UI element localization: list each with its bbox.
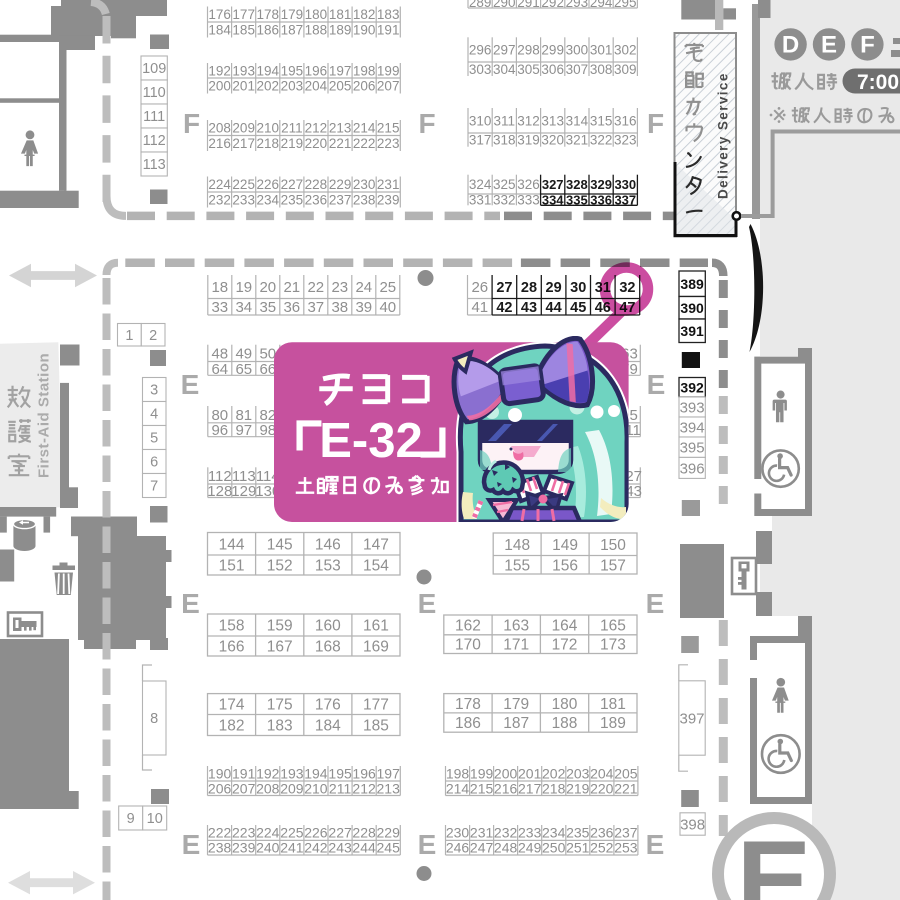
svg-text:200: 200	[494, 766, 518, 782]
svg-text:230: 230	[446, 825, 470, 841]
svg-text:234: 234	[257, 193, 280, 208]
svg-text:32: 32	[619, 280, 635, 296]
svg-text:391: 391	[680, 323, 704, 339]
svg-text:27: 27	[496, 280, 512, 296]
svg-text:192: 192	[208, 63, 231, 78]
svg-text:111: 111	[143, 109, 165, 125]
svg-text:167: 167	[267, 639, 293, 656]
svg-text:220: 220	[590, 780, 614, 796]
svg-text:308: 308	[590, 62, 613, 77]
svg-text:290: 290	[493, 0, 516, 10]
svg-text:239: 239	[377, 193, 400, 208]
svg-text:165: 165	[600, 618, 626, 635]
svg-text:169: 169	[363, 639, 389, 656]
svg-text:44: 44	[546, 300, 562, 316]
svg-text:202: 202	[542, 766, 566, 782]
svg-text:315: 315	[590, 113, 613, 128]
svg-text:219: 219	[281, 136, 304, 151]
svg-text:212: 212	[305, 121, 328, 136]
svg-text:247: 247	[470, 840, 494, 856]
svg-text:238: 238	[353, 193, 376, 208]
svg-text:314: 314	[566, 113, 589, 128]
svg-text:180: 180	[552, 696, 578, 713]
svg-text:210: 210	[257, 121, 280, 136]
svg-text:221: 221	[614, 780, 638, 796]
svg-text:30: 30	[570, 280, 586, 296]
svg-text:188: 188	[305, 23, 328, 38]
svg-text:189: 189	[600, 715, 626, 732]
svg-text:198: 198	[353, 63, 376, 78]
svg-text:329: 329	[590, 177, 612, 192]
svg-text:E-32: E-32	[319, 414, 423, 468]
svg-text:158: 158	[219, 618, 245, 635]
svg-text:232: 232	[208, 193, 231, 208]
svg-text:18: 18	[211, 279, 228, 296]
svg-text:197: 197	[377, 766, 401, 782]
svg-text:221: 221	[329, 136, 352, 151]
svg-text:220: 220	[305, 136, 328, 151]
svg-text:45: 45	[570, 300, 586, 316]
svg-text:300: 300	[566, 43, 589, 58]
svg-text:3: 3	[150, 383, 158, 399]
svg-text:209: 209	[280, 780, 304, 796]
svg-text:162: 162	[455, 618, 481, 635]
svg-text:223: 223	[377, 136, 400, 151]
svg-text:224: 224	[256, 825, 280, 841]
svg-text:F: F	[647, 108, 664, 139]
svg-text:239: 239	[232, 840, 256, 856]
svg-text:248: 248	[494, 840, 518, 856]
svg-text:E: E	[182, 829, 201, 860]
svg-text:316: 316	[614, 113, 637, 128]
svg-text:164: 164	[552, 618, 578, 635]
svg-text:E: E	[418, 829, 437, 860]
svg-text:230: 230	[353, 177, 376, 192]
svg-text:324: 324	[469, 177, 492, 192]
svg-text:250: 250	[542, 840, 566, 856]
svg-text:7:00: 7:00	[857, 71, 899, 94]
svg-text:155: 155	[504, 557, 530, 574]
svg-text:96: 96	[211, 422, 228, 439]
svg-text:291: 291	[517, 0, 540, 10]
svg-text:236: 236	[305, 193, 328, 208]
svg-text:295: 295	[614, 0, 637, 10]
svg-text:97: 97	[235, 422, 252, 439]
svg-text:166: 166	[219, 639, 245, 656]
svg-text:334: 334	[542, 193, 564, 208]
svg-text:176: 176	[315, 697, 341, 714]
svg-text:208: 208	[208, 121, 231, 136]
svg-text:173: 173	[600, 637, 626, 654]
svg-text:331: 331	[469, 193, 492, 208]
svg-text:190: 190	[208, 766, 232, 782]
svg-text:238: 238	[208, 840, 232, 856]
svg-text:303: 303	[469, 62, 492, 77]
svg-text:249: 249	[518, 840, 542, 856]
svg-text:203: 203	[566, 766, 590, 782]
svg-text:157: 157	[600, 557, 626, 574]
svg-text:194: 194	[304, 766, 328, 782]
svg-text:336: 336	[590, 193, 612, 208]
svg-text:153: 153	[315, 558, 341, 575]
svg-text:37: 37	[307, 299, 324, 316]
svg-text:228: 228	[352, 825, 376, 841]
svg-text:160: 160	[315, 618, 341, 635]
svg-text:243: 243	[328, 840, 352, 856]
svg-text:36: 36	[283, 299, 300, 316]
svg-text:229: 229	[329, 177, 352, 192]
svg-text:251: 251	[566, 840, 590, 856]
svg-text:5: 5	[150, 431, 158, 447]
svg-text:35: 35	[259, 299, 276, 316]
svg-text:333: 333	[517, 193, 540, 208]
svg-text:240: 240	[256, 840, 280, 856]
svg-text:152: 152	[267, 558, 293, 575]
svg-text:6: 6	[150, 455, 158, 471]
svg-text:337: 337	[614, 193, 636, 208]
svg-text:196: 196	[352, 766, 376, 782]
svg-text:E: E	[646, 829, 665, 860]
svg-text:330: 330	[614, 177, 636, 192]
svg-text:232: 232	[494, 825, 518, 841]
svg-text:205: 205	[329, 79, 352, 94]
svg-text:216: 216	[208, 136, 231, 151]
svg-text:302: 302	[614, 43, 637, 58]
svg-text:19: 19	[235, 279, 252, 296]
svg-text:175: 175	[267, 697, 293, 714]
svg-text:180: 180	[305, 7, 328, 22]
svg-text:211: 211	[329, 780, 352, 796]
svg-text:179: 179	[503, 696, 529, 713]
svg-text:25: 25	[379, 279, 396, 296]
svg-text:193: 193	[280, 766, 304, 782]
svg-text:1: 1	[125, 328, 133, 344]
svg-text:187: 187	[503, 715, 529, 732]
svg-text:206: 206	[208, 780, 232, 796]
svg-text:335: 335	[566, 193, 588, 208]
svg-text:304: 304	[493, 62, 516, 77]
svg-text:297: 297	[493, 43, 516, 58]
svg-text:144: 144	[219, 536, 245, 553]
svg-text:174: 174	[219, 697, 245, 714]
svg-text:185: 185	[363, 718, 389, 735]
svg-text:191: 191	[232, 766, 256, 782]
svg-text:323: 323	[614, 133, 637, 148]
svg-text:397: 397	[679, 710, 704, 727]
svg-text:161: 161	[363, 618, 389, 635]
svg-text:204: 204	[305, 79, 328, 94]
svg-text:234: 234	[542, 825, 566, 841]
svg-text:109: 109	[142, 61, 166, 77]
svg-text:225: 225	[280, 825, 304, 841]
svg-text:292: 292	[541, 0, 564, 10]
svg-text:325: 325	[493, 177, 516, 192]
svg-text:8: 8	[150, 711, 158, 727]
svg-text:328: 328	[566, 177, 588, 192]
svg-text:231: 231	[470, 825, 494, 841]
svg-text:184: 184	[208, 23, 231, 38]
svg-text:394: 394	[680, 419, 705, 436]
svg-text:22: 22	[307, 279, 324, 296]
svg-text:189: 189	[329, 23, 352, 38]
svg-text:219: 219	[566, 780, 590, 796]
svg-text:66: 66	[259, 361, 276, 378]
svg-text:212: 212	[352, 780, 376, 796]
svg-text:20: 20	[259, 279, 276, 296]
svg-text:34: 34	[235, 299, 252, 316]
svg-text:213: 213	[377, 780, 401, 796]
svg-text:203: 203	[281, 79, 304, 94]
svg-text:128: 128	[207, 483, 232, 500]
svg-text:245: 245	[377, 840, 401, 856]
svg-text:21: 21	[283, 279, 300, 296]
svg-text:112: 112	[143, 133, 166, 149]
svg-text:312: 312	[517, 113, 540, 128]
svg-text:299: 299	[541, 43, 564, 58]
svg-text:192: 192	[256, 766, 280, 782]
svg-text:64: 64	[211, 361, 228, 378]
svg-text:198: 198	[446, 766, 470, 782]
svg-text:215: 215	[470, 780, 494, 796]
svg-text:301: 301	[590, 43, 613, 58]
svg-text:211: 211	[281, 121, 303, 136]
svg-text:65: 65	[235, 361, 252, 378]
svg-text:313: 313	[541, 113, 564, 128]
svg-text:319: 319	[517, 133, 540, 148]
svg-text:171: 171	[503, 637, 529, 654]
svg-text:194: 194	[257, 63, 280, 78]
svg-text:233: 233	[518, 825, 542, 841]
svg-text:210: 210	[304, 780, 328, 796]
svg-text:306: 306	[541, 62, 564, 77]
svg-text:E: E	[418, 588, 437, 619]
svg-text:181: 181	[329, 7, 352, 22]
svg-text:398: 398	[680, 816, 705, 833]
svg-text:193: 193	[232, 63, 255, 78]
svg-text:395: 395	[680, 440, 705, 457]
svg-text:223: 223	[232, 825, 256, 841]
svg-text:305: 305	[517, 62, 540, 77]
svg-text:F: F	[860, 32, 875, 59]
svg-text:216: 216	[494, 780, 518, 796]
svg-text:326: 326	[517, 177, 540, 192]
svg-text:327: 327	[542, 177, 564, 192]
svg-text:202: 202	[257, 79, 280, 94]
svg-text:321: 321	[566, 133, 589, 148]
svg-text:183: 183	[377, 7, 400, 22]
svg-text:200: 200	[208, 79, 231, 94]
svg-text:235: 235	[566, 825, 590, 841]
svg-text:129: 129	[231, 483, 256, 500]
svg-text:199: 199	[377, 63, 400, 78]
svg-text:214: 214	[353, 121, 376, 136]
svg-text:320: 320	[541, 133, 564, 148]
svg-text:182: 182	[353, 7, 376, 22]
svg-text:217: 217	[518, 780, 542, 796]
svg-text:159: 159	[267, 618, 293, 635]
svg-text:F: F	[418, 108, 435, 139]
svg-text:183: 183	[267, 718, 293, 735]
svg-text:235: 235	[281, 193, 304, 208]
svg-text:2: 2	[149, 328, 157, 344]
svg-text:206: 206	[353, 79, 376, 94]
svg-text:208: 208	[256, 780, 280, 796]
svg-text:7: 7	[150, 479, 158, 495]
svg-text:146: 146	[315, 536, 341, 553]
svg-text:233: 233	[232, 193, 255, 208]
svg-text:389: 389	[680, 276, 704, 292]
svg-text:214: 214	[446, 780, 470, 796]
svg-text:209: 209	[232, 121, 255, 136]
svg-text:227: 227	[328, 825, 352, 841]
svg-text:190: 190	[353, 23, 376, 38]
svg-text:40: 40	[379, 299, 396, 316]
svg-text:242: 242	[304, 840, 328, 856]
svg-text:178: 178	[257, 7, 280, 22]
svg-text:182: 182	[219, 718, 245, 735]
svg-text:195: 195	[281, 63, 304, 78]
svg-text:213: 213	[329, 121, 352, 136]
svg-text:229: 229	[377, 825, 401, 841]
svg-text:149: 149	[552, 537, 578, 554]
svg-text:322: 322	[590, 133, 613, 148]
svg-text:150: 150	[600, 537, 626, 554]
svg-text:217: 217	[232, 136, 255, 151]
svg-text:9: 9	[127, 811, 135, 827]
svg-text:396: 396	[680, 460, 705, 477]
svg-text:253: 253	[614, 840, 638, 856]
svg-text:226: 226	[257, 177, 280, 192]
svg-text:294: 294	[590, 0, 613, 10]
svg-text:43: 43	[521, 300, 537, 316]
svg-text:205: 205	[614, 766, 638, 782]
svg-text:225: 225	[232, 177, 255, 192]
svg-text:289: 289	[469, 0, 492, 10]
svg-text:147: 147	[363, 536, 389, 553]
svg-text:D: D	[782, 32, 799, 59]
svg-text:390: 390	[680, 300, 704, 316]
svg-text:24: 24	[355, 279, 372, 296]
svg-text:168: 168	[315, 639, 341, 656]
svg-text:145: 145	[267, 536, 293, 553]
svg-text:218: 218	[542, 780, 566, 796]
svg-text:E: E	[181, 588, 200, 619]
svg-text:201: 201	[518, 766, 542, 782]
svg-text:222: 222	[208, 825, 232, 841]
svg-text:39: 39	[355, 299, 372, 316]
svg-text:293: 293	[566, 0, 589, 10]
svg-text:Delivery Service: Delivery Service	[716, 72, 731, 199]
svg-text:38: 38	[331, 299, 348, 316]
svg-text:226: 226	[304, 825, 328, 841]
svg-text:311: 311	[494, 113, 516, 128]
svg-text:110: 110	[143, 85, 166, 101]
svg-text:176: 176	[208, 7, 231, 22]
svg-text:98: 98	[259, 422, 276, 439]
svg-text:188: 188	[552, 715, 578, 732]
svg-text:307: 307	[566, 62, 589, 77]
svg-text:E: E	[181, 369, 200, 400]
svg-text:113: 113	[143, 157, 166, 173]
svg-text:187: 187	[281, 23, 304, 38]
svg-text:218: 218	[257, 136, 280, 151]
svg-text:231: 231	[377, 177, 400, 192]
svg-text:237: 237	[329, 193, 352, 208]
svg-text:241: 241	[280, 840, 304, 856]
svg-text:29: 29	[546, 280, 562, 296]
svg-text:201: 201	[232, 79, 255, 94]
svg-text:177: 177	[363, 697, 389, 714]
svg-text:204: 204	[590, 766, 614, 782]
svg-text:236: 236	[590, 825, 614, 841]
svg-text:26: 26	[471, 279, 488, 296]
svg-text:First-Aid Station: First-Aid Station	[36, 353, 53, 478]
svg-text:156: 156	[552, 557, 578, 574]
svg-text:222: 222	[353, 136, 376, 151]
svg-text:191: 191	[377, 23, 400, 38]
svg-text:41: 41	[471, 299, 488, 316]
svg-text:185: 185	[232, 23, 255, 38]
svg-text:23: 23	[331, 279, 348, 296]
svg-text:393: 393	[680, 399, 705, 416]
svg-text:199: 199	[470, 766, 494, 782]
svg-text:228: 228	[305, 177, 328, 192]
svg-text:F: F	[183, 108, 200, 139]
svg-text:186: 186	[455, 715, 481, 732]
svg-text:177: 177	[232, 7, 255, 22]
svg-text:179: 179	[281, 7, 304, 22]
svg-text:244: 244	[352, 840, 376, 856]
svg-text:207: 207	[232, 780, 256, 796]
svg-text:E: E	[737, 818, 812, 900]
svg-text:172: 172	[552, 637, 578, 654]
svg-text:309: 309	[614, 62, 637, 77]
svg-text:318: 318	[493, 133, 516, 148]
svg-text:332: 332	[493, 193, 516, 208]
svg-text:195: 195	[328, 766, 352, 782]
svg-text:151: 151	[219, 558, 245, 575]
svg-text:196: 196	[305, 63, 328, 78]
svg-text:178: 178	[455, 696, 481, 713]
svg-text:186: 186	[257, 23, 280, 38]
svg-text:317: 317	[469, 133, 492, 148]
svg-text:207: 207	[377, 79, 400, 94]
svg-text:392: 392	[680, 379, 704, 395]
svg-text:E: E	[821, 32, 837, 59]
svg-text:184: 184	[315, 718, 341, 735]
svg-text:42: 42	[496, 300, 512, 316]
svg-text:296: 296	[469, 43, 492, 58]
svg-text:163: 163	[503, 618, 529, 635]
svg-text:237: 237	[614, 825, 638, 841]
svg-text:310: 310	[469, 113, 492, 128]
svg-text:252: 252	[590, 840, 614, 856]
svg-text:148: 148	[504, 537, 530, 554]
svg-text:154: 154	[363, 558, 389, 575]
svg-text:197: 197	[329, 63, 352, 78]
svg-text:181: 181	[600, 696, 626, 713]
svg-text:33: 33	[211, 299, 228, 316]
svg-text:224: 224	[208, 177, 231, 192]
svg-text:E: E	[646, 588, 665, 619]
svg-text:28: 28	[521, 280, 537, 296]
svg-text:298: 298	[517, 43, 540, 58]
svg-text:215: 215	[377, 121, 400, 136]
svg-text:170: 170	[455, 637, 481, 654]
svg-text:10: 10	[147, 811, 163, 827]
svg-text:4: 4	[150, 407, 158, 423]
svg-text:246: 246	[446, 840, 470, 856]
